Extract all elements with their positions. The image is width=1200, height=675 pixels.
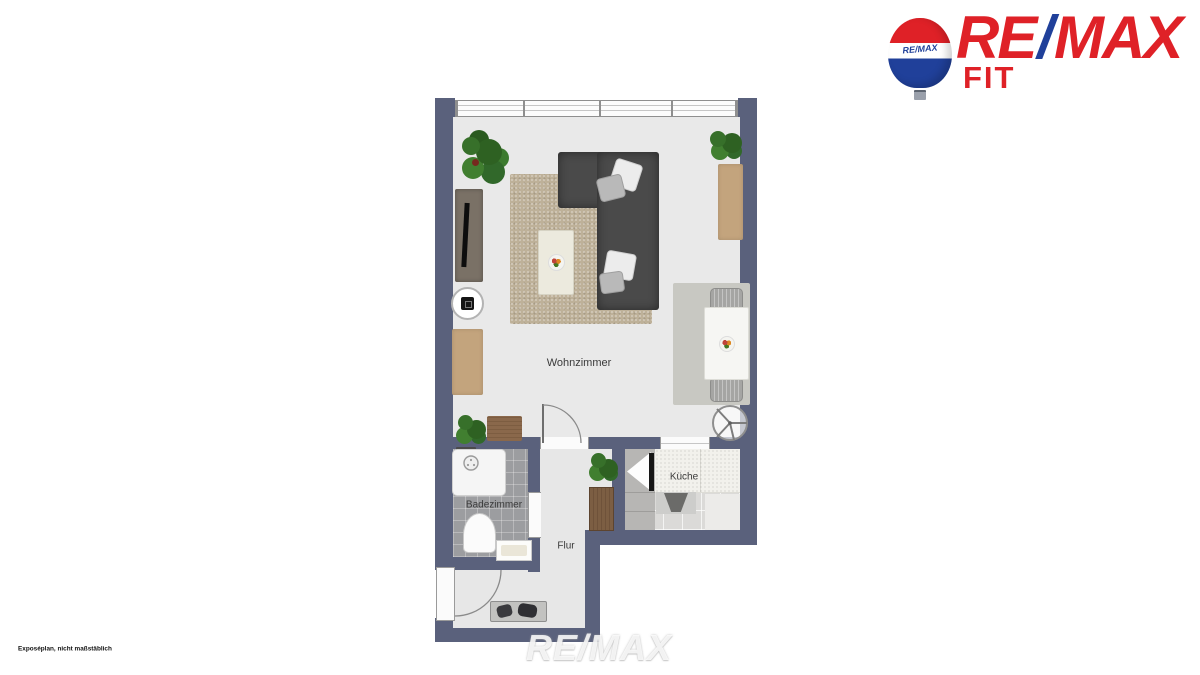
shower xyxy=(452,449,506,496)
disclaimer-text: Exposéplan, nicht maßstäblich xyxy=(18,645,112,652)
logo-wordmark: RE/MAX xyxy=(956,8,1181,68)
fruit-bowl xyxy=(548,254,565,271)
sofa-pillow xyxy=(599,270,626,294)
plant-foliage xyxy=(710,131,726,147)
remax-balloon-icon: RE/MAX xyxy=(888,18,952,88)
label-badezimmer: Badezimmer xyxy=(466,500,522,511)
kitchen-sink-stove xyxy=(656,492,696,514)
sink-basin xyxy=(501,545,527,556)
label-kueche: Küche xyxy=(670,472,698,483)
plant-pot xyxy=(472,159,479,166)
balloon-basket xyxy=(914,90,926,100)
shoes xyxy=(517,603,538,619)
floor-kueche-light-patch xyxy=(705,494,740,530)
doormat-left xyxy=(487,416,522,441)
plant-top-right xyxy=(702,125,742,160)
bathroom-sink xyxy=(496,540,532,561)
window-top xyxy=(455,100,738,117)
logo-slash: / xyxy=(1035,4,1054,71)
dining-chair-bottom xyxy=(710,377,743,402)
logo-max: MAX xyxy=(1054,4,1181,71)
plant-bottom-left xyxy=(451,409,484,444)
tv xyxy=(461,203,469,267)
oven-handle xyxy=(649,453,654,491)
side-table-detail xyxy=(465,301,472,308)
badezimmer-door xyxy=(528,492,541,538)
plant-top-left xyxy=(450,127,504,187)
plant-foliage xyxy=(462,137,480,155)
plant-foliage xyxy=(458,415,473,430)
kitchen-pass-through-window xyxy=(660,437,710,449)
floorplan-page: Wohnzimmer Badezimmer Flur Küche RE/MAX xyxy=(0,0,1200,675)
wohnzimmer-door-threshold xyxy=(540,437,589,449)
wall xyxy=(585,530,757,545)
round-side-table xyxy=(451,287,484,320)
label-flur: Flur xyxy=(557,541,574,552)
window-frame-end xyxy=(735,100,738,117)
logo-office-name: FIT xyxy=(963,62,1016,93)
window-mullion xyxy=(523,100,525,117)
dining-table xyxy=(704,307,749,380)
plant-flur xyxy=(585,448,614,482)
wall xyxy=(708,437,757,449)
balloon-band-label: RE/MAX xyxy=(888,41,953,57)
wardrobe xyxy=(589,487,614,531)
label-wohnzimmer: Wohnzimmer xyxy=(547,357,612,369)
shoe-bench xyxy=(490,601,547,622)
toilet xyxy=(463,513,496,553)
entry-door xyxy=(436,567,455,621)
side-table-top xyxy=(461,297,474,310)
window-mullion xyxy=(671,100,673,117)
tv-sideboard xyxy=(455,189,483,282)
sink-basin-dark xyxy=(664,493,688,512)
dresser-left xyxy=(452,329,483,395)
watermark-text: RE/MAX xyxy=(526,627,672,669)
shoes xyxy=(496,603,513,618)
fruit-bowl xyxy=(719,336,735,352)
plant-foliage xyxy=(591,453,606,468)
sideboard-right xyxy=(718,164,743,240)
window-frame-end xyxy=(455,100,458,117)
window-mullion xyxy=(599,100,601,117)
coffee-table xyxy=(538,230,574,295)
wall xyxy=(528,449,540,494)
